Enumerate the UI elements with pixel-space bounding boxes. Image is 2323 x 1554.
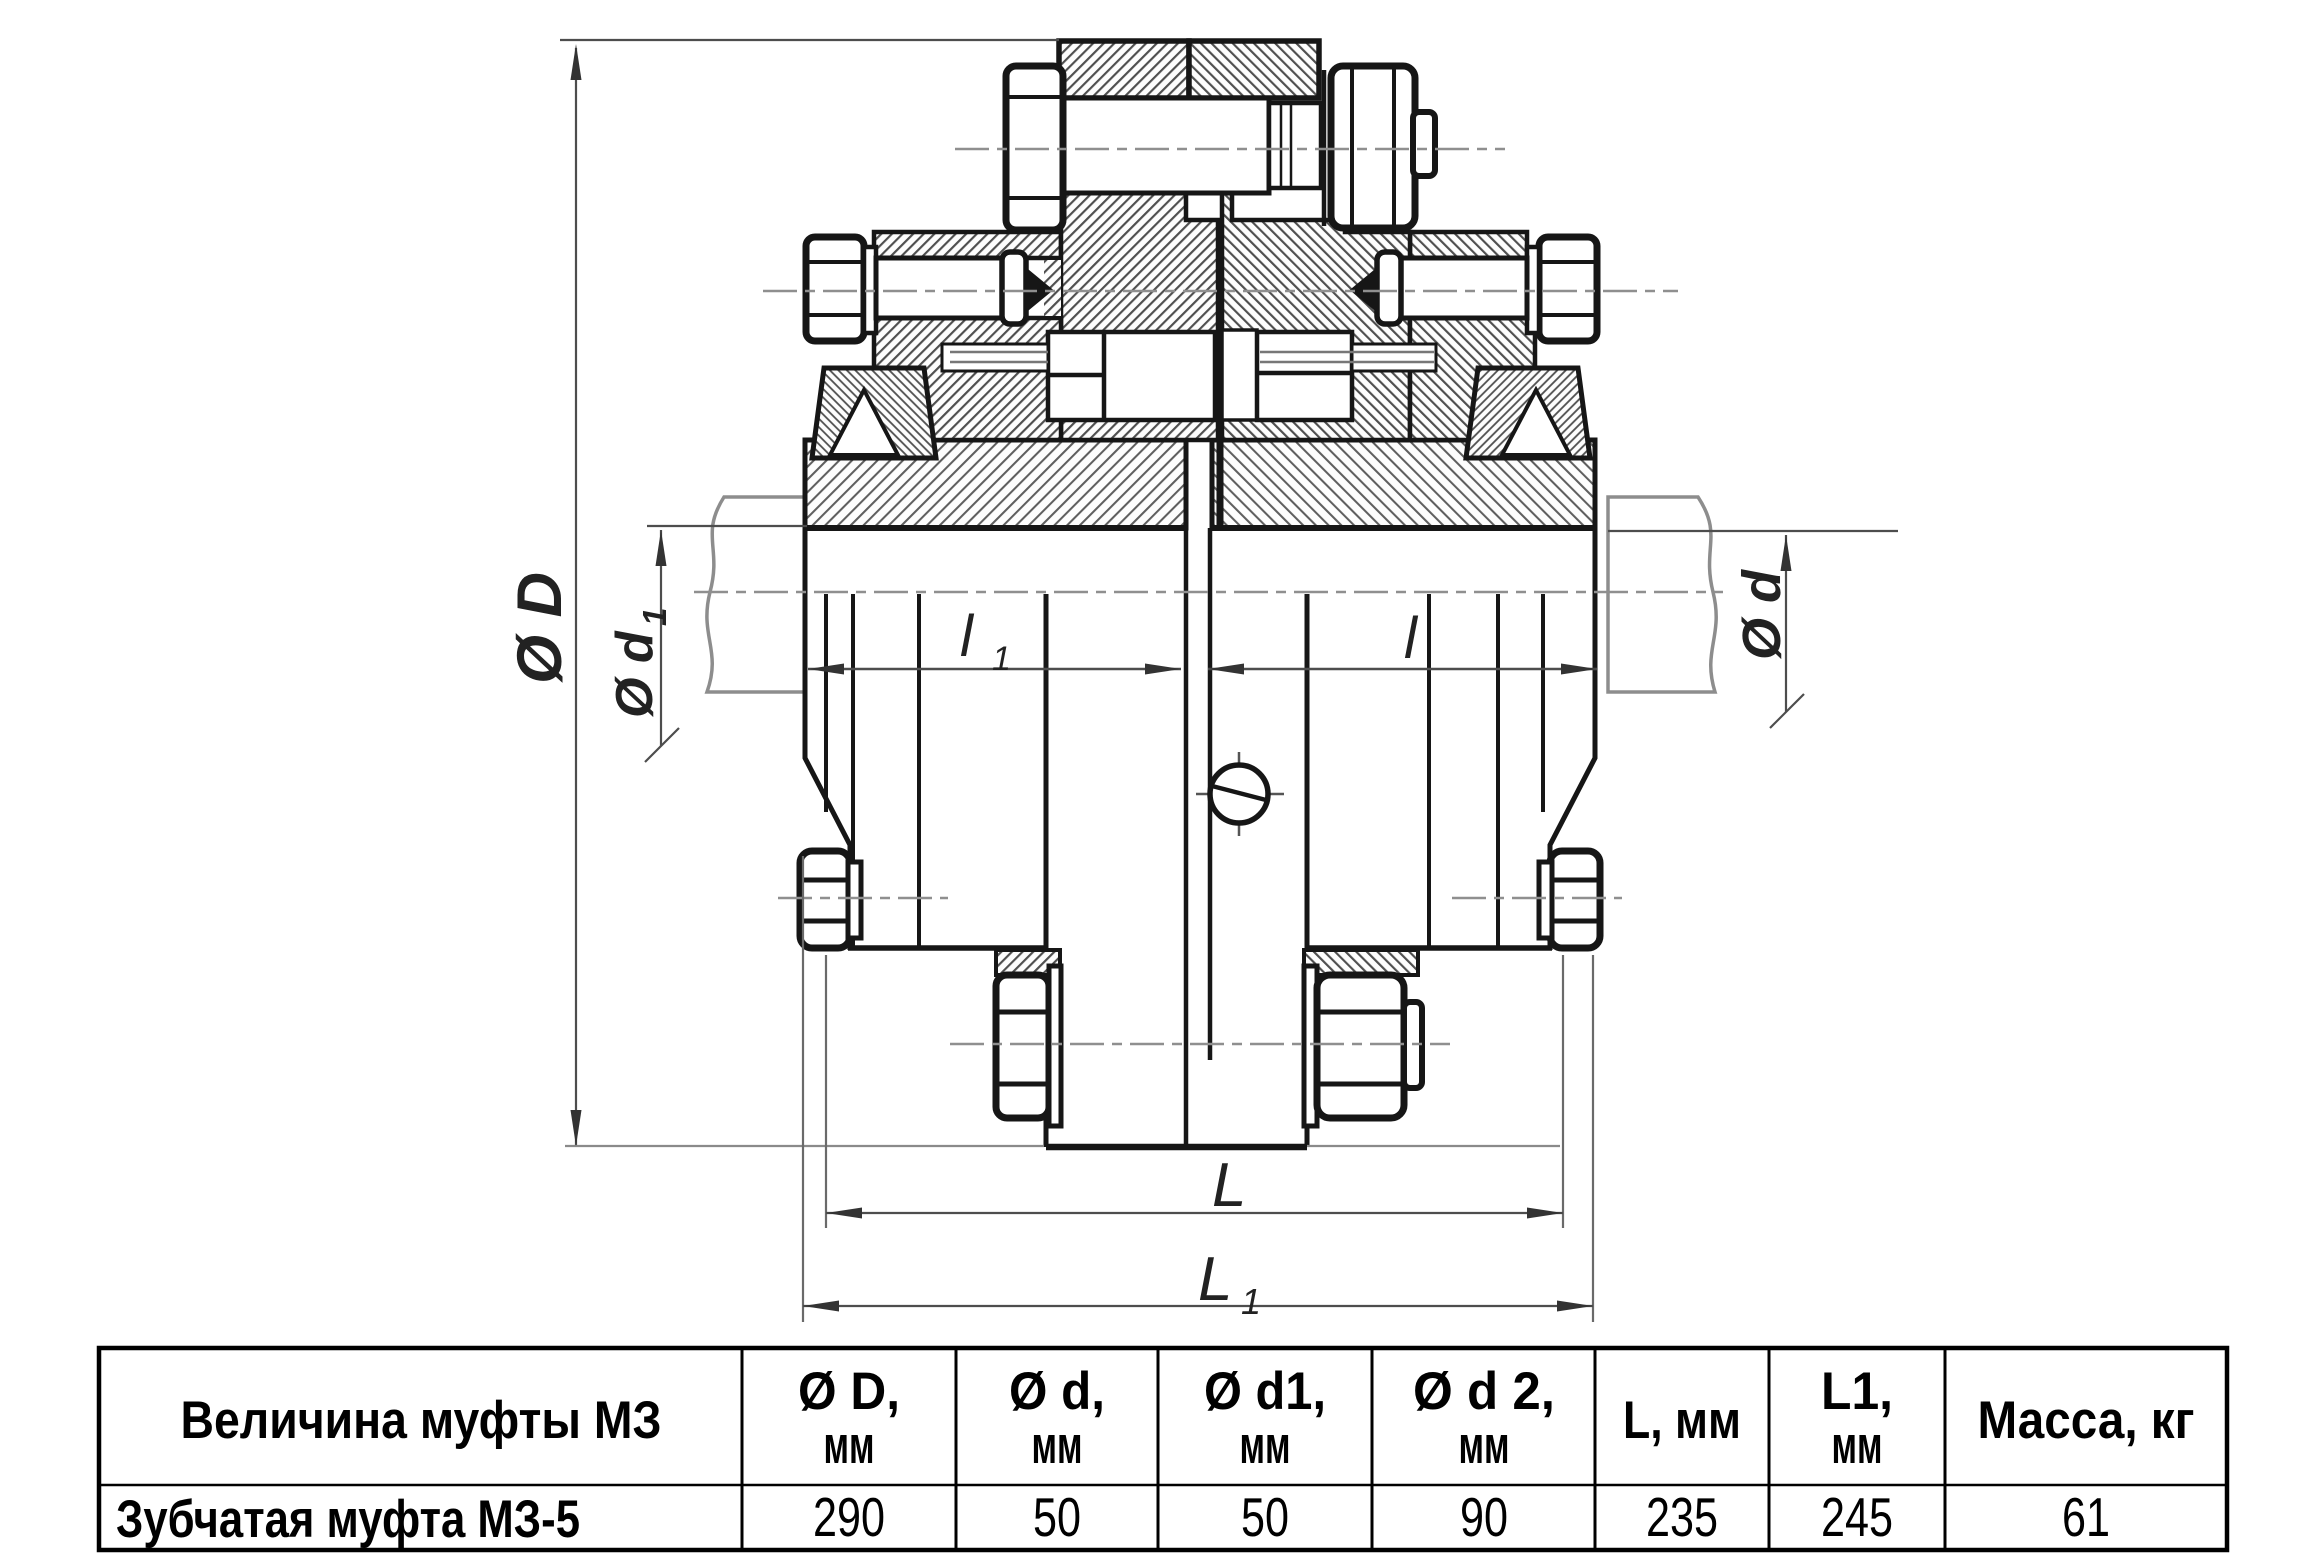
svg-text:245: 245 xyxy=(1821,1486,1893,1548)
svg-text:290: 290 xyxy=(813,1486,885,1548)
svg-text:50: 50 xyxy=(1033,1486,1081,1548)
svg-text:Ø d1,: Ø d1, xyxy=(1204,1362,1326,1421)
svg-text:Ø d: Ø d xyxy=(1732,569,1792,660)
svg-text:Ø d,: Ø d, xyxy=(1009,1362,1105,1421)
svg-text:1: 1 xyxy=(636,608,673,626)
svg-text:Величина муфты МЗ: Величина муфты МЗ xyxy=(181,1391,662,1450)
svg-text:235: 235 xyxy=(1646,1486,1718,1548)
svg-text:L1,: L1, xyxy=(1821,1362,1893,1421)
svg-text:Ø D,: Ø D, xyxy=(798,1362,900,1421)
svg-text:мм: мм xyxy=(1832,1416,1883,1475)
svg-text:Ø d 2,: Ø d 2, xyxy=(1413,1362,1555,1421)
svg-text:Ø d: Ø d xyxy=(606,630,664,718)
svg-text:L: L xyxy=(1212,1151,1246,1220)
svg-text:l: l xyxy=(960,604,975,669)
svg-text:Ø D: Ø D xyxy=(505,572,575,684)
svg-text:1: 1 xyxy=(992,640,1011,678)
svg-text:мм: мм xyxy=(824,1416,875,1475)
svg-text:50: 50 xyxy=(1241,1486,1289,1548)
svg-text:1: 1 xyxy=(1241,1281,1261,1322)
svg-text:L: L xyxy=(1198,1245,1232,1314)
svg-text:мм: мм xyxy=(1240,1416,1291,1475)
svg-text:90: 90 xyxy=(1460,1486,1508,1548)
svg-text:61: 61 xyxy=(2062,1486,2110,1548)
svg-text:Масса, кг: Масса, кг xyxy=(1978,1391,2195,1450)
svg-text:L, мм: L, мм xyxy=(1623,1391,1741,1450)
svg-text:l: l xyxy=(1404,606,1419,671)
svg-text:мм: мм xyxy=(1459,1416,1510,1475)
svg-text:Зубчатая муфта МЗ-5: Зубчатая муфта МЗ-5 xyxy=(116,1490,580,1549)
svg-text:мм: мм xyxy=(1032,1416,1083,1475)
